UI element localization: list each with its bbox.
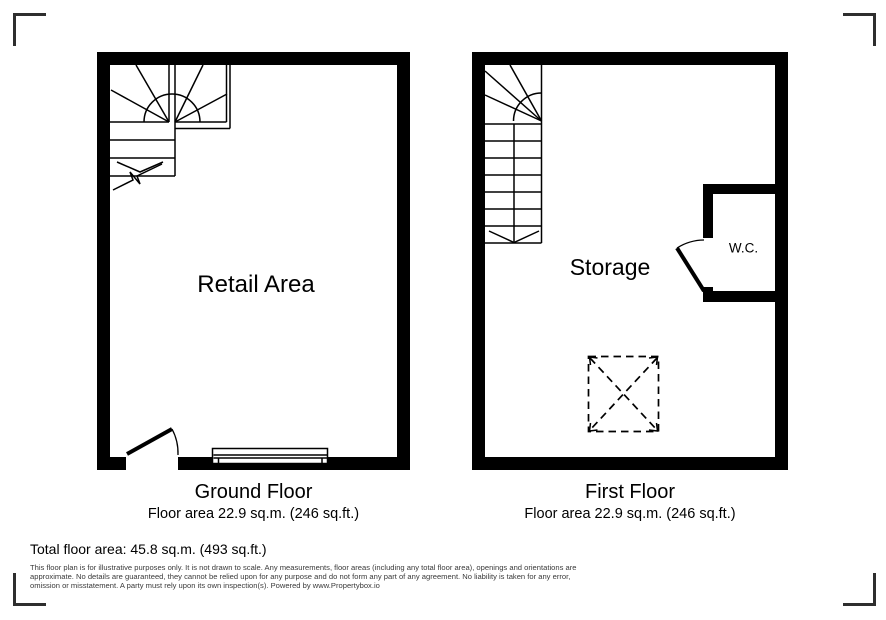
door-swing-arc — [677, 240, 704, 248]
door-swing-arc — [172, 429, 178, 455]
door-opening — [126, 456, 178, 472]
ground-floor-entrance-door — [126, 429, 178, 472]
door-leaf — [127, 429, 172, 454]
first-floor-caption: First Floor Floor area 22.9 sq.m. (246 s… — [472, 482, 788, 522]
wc-label: W.C. — [729, 241, 758, 256]
void-hatch-symbol — [589, 357, 659, 432]
floorplan-canvas: Retail Area — [0, 0, 886, 620]
disclaimer-line-3: omission or misstatement. A party must r… — [30, 581, 576, 590]
door-leaf — [677, 248, 704, 291]
first-floor-area-text: Floor area 22.9 sq.m. (246 sq.ft.) — [472, 506, 788, 522]
ground-floor-caption: Ground Floor Floor area 22.9 sq.m. (246 … — [97, 482, 410, 522]
ground-floor-title: Ground Floor — [97, 482, 410, 502]
ground-floor-window — [213, 449, 328, 464]
ground-floor-plan: Retail Area — [104, 59, 404, 472]
disclaimer: This floor plan is for illustrative purp… — [30, 563, 576, 591]
disclaimer-line-2: approximate. No details are guaranteed, … — [30, 572, 576, 581]
first-floor-plan: Storage W.C. — [479, 59, 789, 464]
first-floor-title: First Floor — [472, 482, 788, 502]
ground-floor-staircase — [110, 65, 230, 190]
total-floor-area: Total floor area: 45.8 sq.m. (493 sq.ft.… — [30, 541, 267, 557]
first-floor-staircase — [485, 65, 542, 243]
disclaimer-line-1: This floor plan is for illustrative purp… — [30, 563, 576, 572]
ground-floor-outer-walls — [104, 59, 404, 464]
page-root: { "colors": { "plan_lines": "#000000", "… — [0, 0, 886, 620]
ground-floor-area-text: Floor area 22.9 sq.m. (246 sq.ft.) — [97, 506, 410, 522]
storage-label: Storage — [570, 254, 651, 280]
stair-break-line — [113, 164, 162, 190]
wc-door — [677, 240, 704, 291]
retail-area-label: Retail Area — [197, 271, 315, 298]
stair-walkline-arc — [144, 94, 200, 122]
